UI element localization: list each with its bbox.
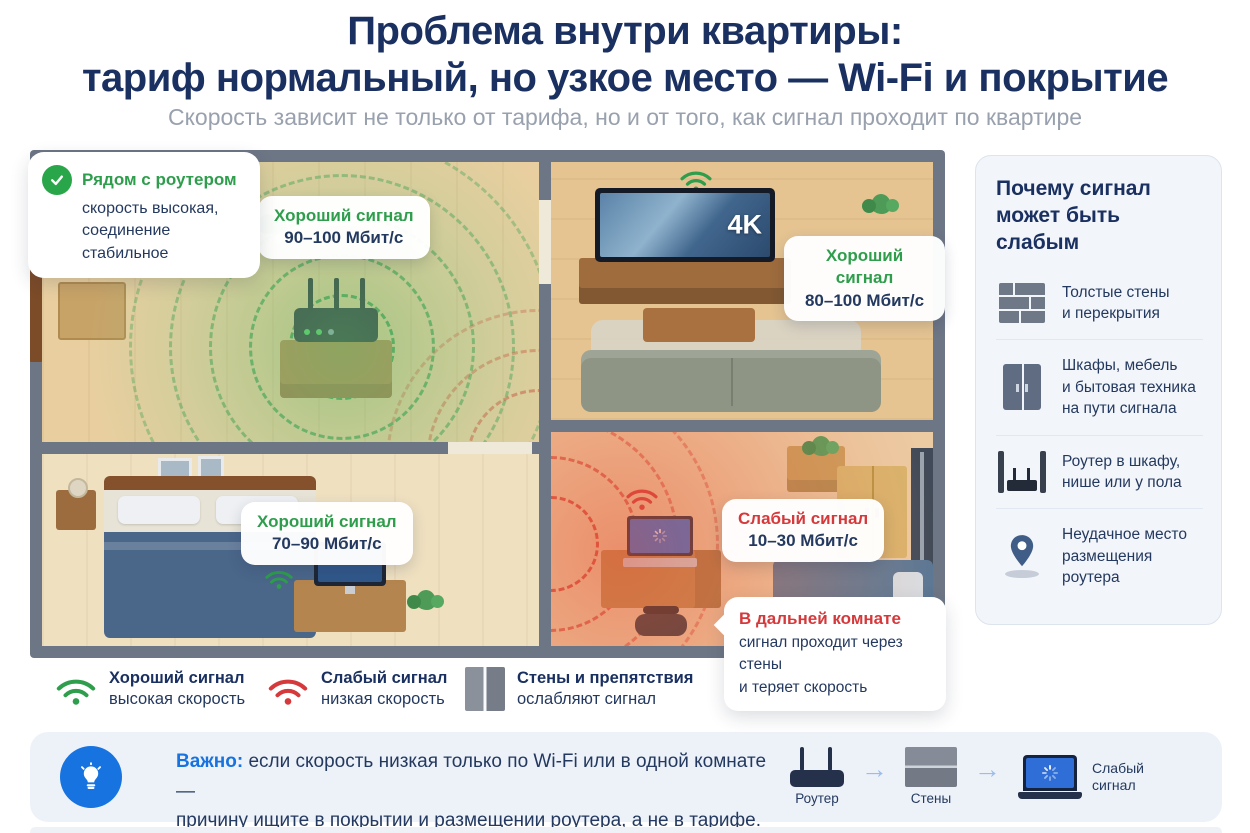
lamp — [68, 478, 88, 498]
important-label: Важно: — [176, 751, 243, 772]
plant — [811, 436, 831, 456]
doorway — [448, 442, 532, 454]
entry-door — [30, 268, 42, 362]
important-note-text: Важно: если скорость низкая только по Wi… — [176, 747, 786, 833]
signal-path-steps: Роутер → Стены → Слабый сигнал — [790, 742, 1144, 812]
far-room-desk — [601, 550, 721, 608]
wifi-weak-icon — [267, 673, 309, 706]
router-device — [294, 308, 378, 342]
far-room-callout-body: сигнал проходит через стены и теряет ско… — [739, 632, 931, 699]
router-callout-body: скорость высокая, соединение стабильное — [82, 198, 246, 265]
brick-wall-icon — [999, 283, 1045, 323]
plant — [871, 194, 891, 214]
signal-label-far-room: Слабый сигнал 10–30 Мбит/с — [722, 499, 884, 562]
wifi-good-icon — [55, 673, 97, 706]
check-circle-icon — [42, 165, 72, 195]
sidebar-item-furniture: Шкафы, мебель и бытовая техника на пути … — [996, 339, 1203, 434]
infographic-page: Проблема внутри квартиры: тариф нормальн… — [0, 0, 1250, 833]
signal-label-bedroom: Хороший сигнал 70–90 Мбит/с — [241, 502, 413, 565]
wifi-good-icon — [264, 566, 294, 590]
tv-4k: 4K — [595, 188, 775, 262]
wall-icon — [465, 667, 505, 711]
walls-icon — [905, 747, 957, 787]
step-walls: Стены — [905, 747, 957, 808]
arrow-right-icon: → — [974, 754, 1001, 785]
legend-good-signal: Хороший сигналвысокая скорость — [55, 668, 267, 711]
sidebar-title: Почему сигнал может быть слабым — [996, 176, 1203, 257]
router-icon — [790, 747, 844, 787]
lightbulb-icon — [60, 746, 122, 808]
office-chair — [635, 614, 687, 636]
far-room-callout-title: В дальней комнате — [739, 609, 931, 629]
wardrobe-icon — [1003, 364, 1041, 410]
laptop-loading-icon — [1018, 755, 1082, 799]
step-router: Роутер — [790, 747, 844, 808]
far-room-callout: В дальней комнате сигнал проходит через … — [724, 597, 946, 711]
laptop-keyboard — [623, 558, 697, 567]
sidebar-item-bad-placement: Неудачное место размещения роутера — [996, 508, 1203, 603]
loading-spinner-icon — [652, 528, 668, 544]
legend-walls: Стены и препятствияослабляют сигнал — [465, 667, 693, 711]
step-weak-signal: Слабый сигнал — [1018, 755, 1144, 799]
shelf — [787, 446, 845, 492]
arrow-right-icon: → — [861, 754, 888, 785]
router-callout: Рядом с роутером скорость высокая, соеди… — [28, 152, 260, 278]
sidebar-item-thick-walls: Толстые стены и перекрытия — [996, 267, 1203, 340]
laptop-loading — [627, 516, 693, 556]
sidebar-item-router-in-closet: Роутер в шкафу, нише или у пола — [996, 435, 1203, 509]
router-cabinet — [280, 340, 392, 398]
tv-4k-badge: 4K — [727, 210, 762, 241]
page-subtitle: Скорость зависит не только от тарифа, но… — [0, 104, 1250, 131]
why-signal-weak-panel: Почему сигнал может быть слабым Толстые … — [975, 155, 1222, 625]
wifi-weak-icon — [625, 484, 659, 511]
router-in-niche-icon — [998, 451, 1046, 493]
legend: Хороший сигналвысокая скорость Слабый си… — [55, 667, 693, 711]
door-mat — [58, 282, 126, 340]
signal-label-living-room: Хороший сигнал 80–100 Мбит/с — [784, 236, 945, 321]
legend-weak-signal: Слабый сигналнизкая скорость — [267, 668, 465, 711]
page-title: Проблема внутри квартиры: тариф нормальн… — [0, 8, 1250, 102]
signal-label-router-room: Хороший сигнал 90–100 Мбит/с — [258, 196, 430, 259]
important-note-banner: Важно: если скорость низкая только по Wi… — [30, 732, 1222, 822]
loading-spinner-icon — [1041, 764, 1059, 782]
window — [911, 448, 933, 580]
plant — [416, 590, 436, 610]
sofa — [581, 350, 881, 412]
next-card-edge — [30, 827, 1222, 833]
doorway — [539, 200, 551, 284]
tv-stand — [579, 258, 791, 304]
router-callout-title: Рядом с роутером — [82, 170, 237, 190]
coffee-table — [643, 308, 755, 342]
location-pin-icon — [996, 534, 1048, 578]
